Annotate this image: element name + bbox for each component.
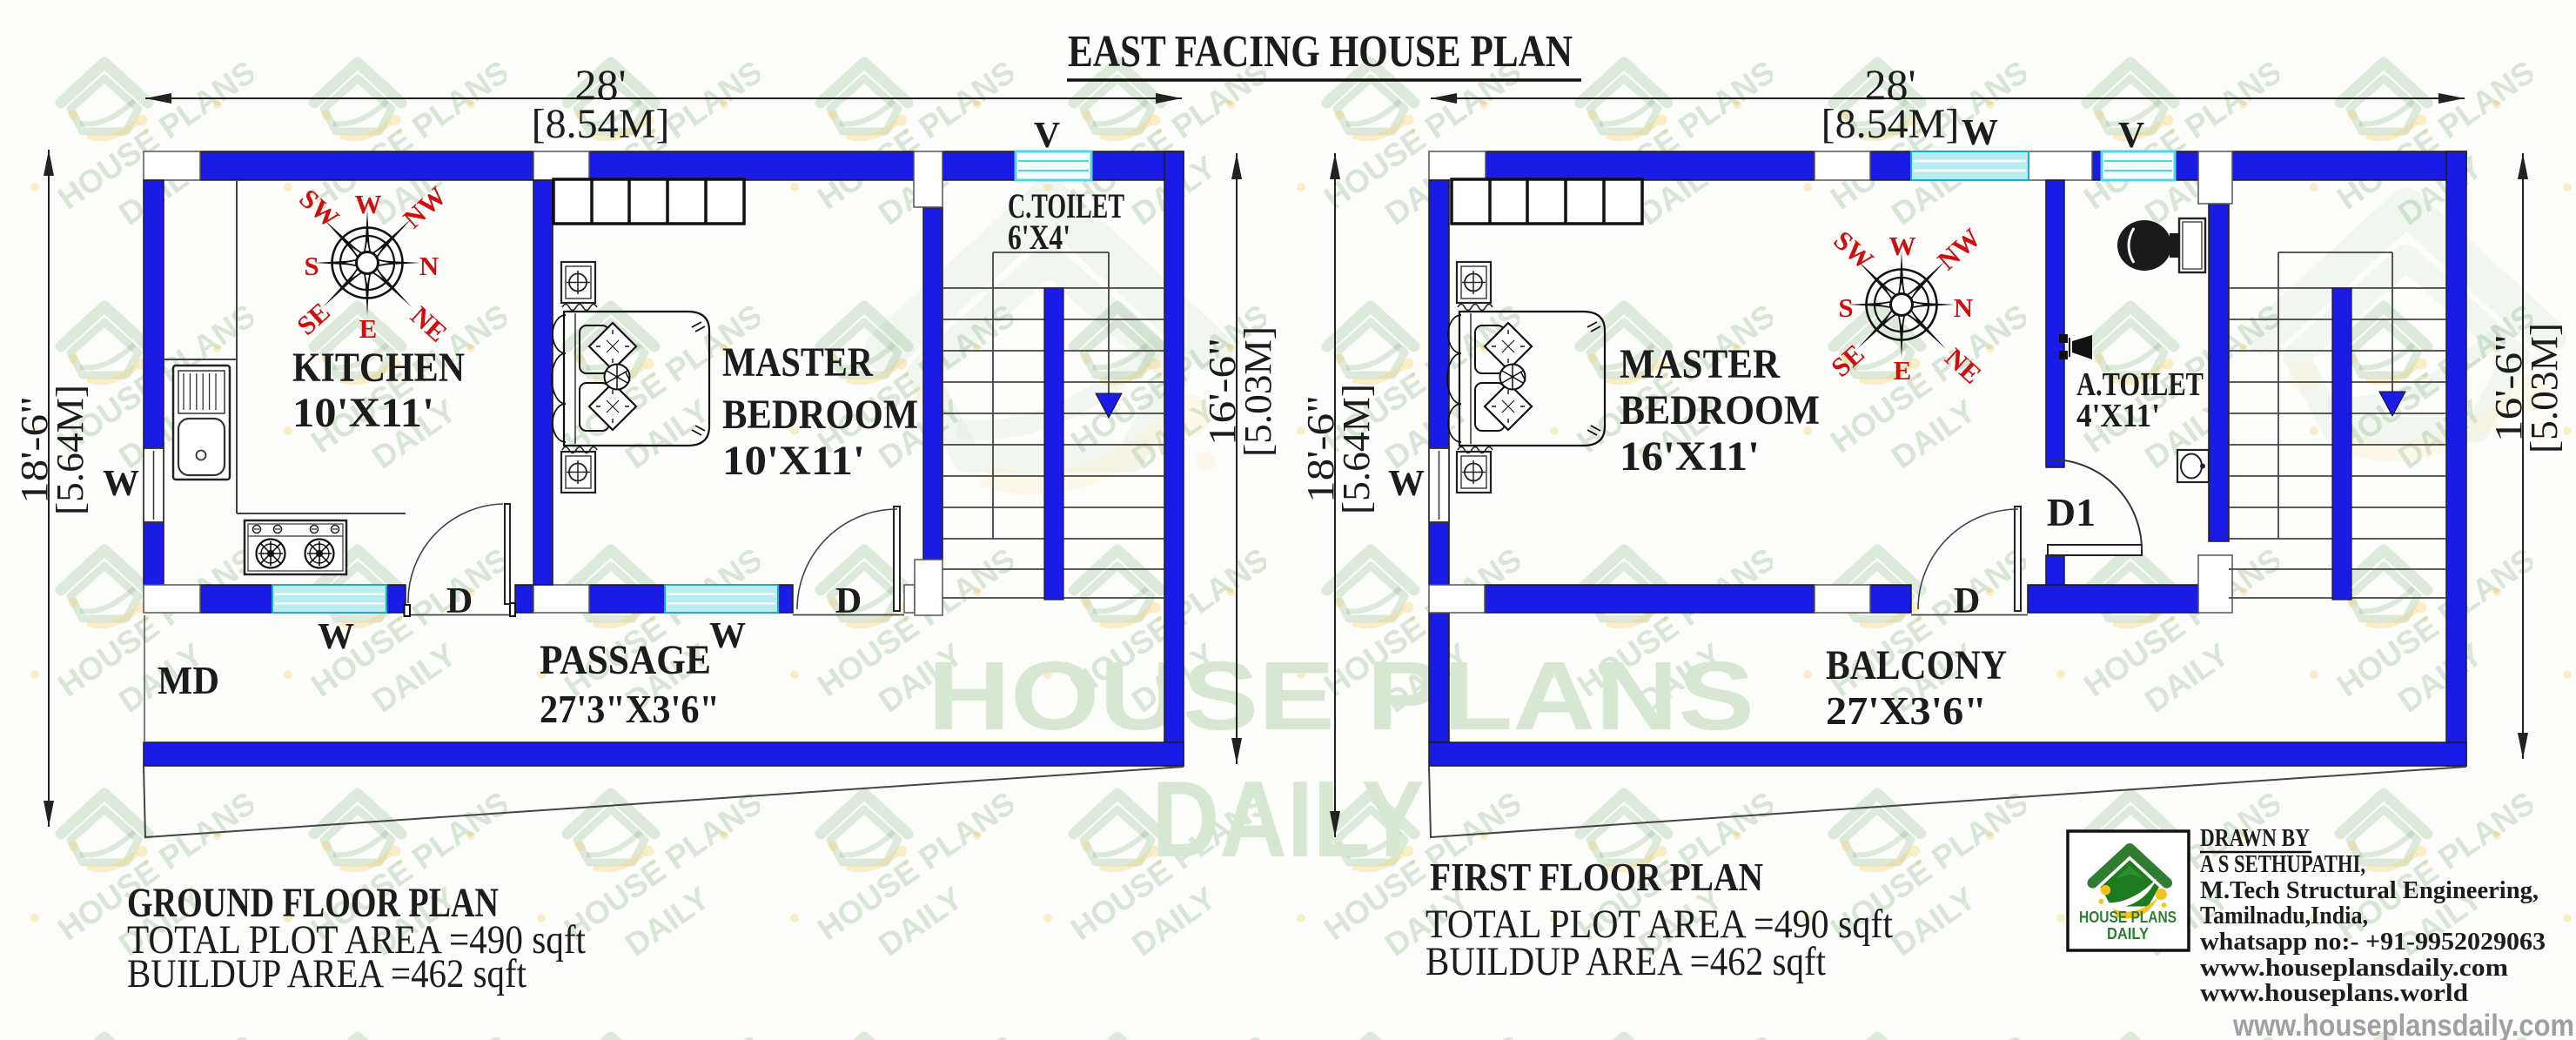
svg-text:E: E	[1894, 355, 1912, 386]
svg-text:BEDROOM: BEDROOM	[1620, 387, 1820, 433]
svg-text:KITCHEN: KITCHEN	[292, 345, 465, 391]
svg-text:DAILY: DAILY	[2107, 925, 2149, 943]
svg-text:BUILDUP AREA =462 sqft: BUILDUP AREA =462 sqft	[127, 951, 527, 996]
svg-text:www.houseplansdaily.com: www.houseplansdaily.com	[2232, 1009, 2574, 1040]
svg-text:MASTER: MASTER	[722, 339, 874, 386]
svg-text:BALCONY: BALCONY	[1826, 642, 2007, 688]
svg-text:W: W	[355, 189, 382, 219]
svg-text:[5.03M]: [5.03M]	[2523, 323, 2566, 453]
svg-text:FIRST FLOOR PLAN: FIRST FLOOR PLAN	[1430, 855, 1763, 899]
svg-text:BEDROOM: BEDROOM	[722, 392, 918, 438]
svg-text:whatsapp no:- +91-9952029063: whatsapp no:- +91-9952029063	[2200, 929, 2546, 956]
svg-text:[5.64M]: [5.64M]	[49, 385, 91, 515]
svg-text:PASSAGE: PASSAGE	[540, 637, 711, 683]
svg-text:10'X11': 10'X11'	[292, 390, 434, 436]
svg-text:V: V	[2118, 116, 2144, 156]
svg-text:[8.54M]: [8.54M]	[1821, 101, 1960, 147]
svg-text:W: W	[709, 616, 746, 656]
svg-text:D: D	[835, 581, 862, 621]
svg-text:Tamilnadu,India,: Tamilnadu,India,	[2200, 902, 2368, 929]
svg-text:www.houseplansdaily.com: www.houseplansdaily.com	[2200, 955, 2508, 982]
svg-text:N: N	[419, 251, 439, 281]
svg-text:27'X3'6": 27'X3'6"	[1826, 688, 1987, 733]
svg-text:S: S	[304, 251, 319, 281]
svg-text:MASTER: MASTER	[1620, 341, 1781, 387]
svg-text:W: W	[318, 617, 354, 657]
svg-text:[8.54M]: [8.54M]	[532, 101, 670, 147]
svg-text:D1: D1	[2047, 490, 2096, 534]
svg-text:S: S	[1838, 292, 1853, 323]
svg-text:W: W	[103, 464, 139, 504]
svg-text:M.Tech Structural Engineering,: M.Tech Structural Engineering,	[2200, 877, 2539, 904]
svg-text:6'X4': 6'X4'	[1008, 218, 1070, 257]
svg-text:HOUSE PLANS: HOUSE PLANS	[928, 641, 1754, 750]
svg-text:DAILY: DAILY	[1152, 760, 1425, 880]
svg-text:www.houseplans.world: www.houseplans.world	[2200, 980, 2468, 1007]
svg-text:MD: MD	[158, 658, 219, 702]
svg-text:N: N	[1954, 292, 1973, 323]
svg-text:BUILDUP AREA =462 sqft: BUILDUP AREA =462 sqft	[1426, 939, 1826, 984]
svg-text:D: D	[446, 581, 473, 621]
svg-text:HOUSE PLANS: HOUSE PLANS	[2079, 909, 2177, 926]
svg-text:A S SETHUPATHI,: A S SETHUPATHI,	[2200, 851, 2365, 878]
svg-text:E: E	[359, 313, 378, 344]
svg-text:16'X11': 16'X11'	[1620, 433, 1760, 480]
svg-text:EAST FACING HOUSE PLAN: EAST FACING HOUSE PLAN	[1068, 27, 1573, 77]
svg-text:10'X11': 10'X11'	[722, 438, 865, 484]
svg-text:DRAWN BY: DRAWN BY	[2200, 825, 2310, 852]
svg-text:[5.03M]: [5.03M]	[1237, 326, 1279, 457]
svg-text:27'3"X3'6": 27'3"X3'6"	[540, 687, 720, 731]
svg-text:D: D	[1954, 581, 1980, 621]
svg-text:V: V	[1034, 116, 1060, 156]
svg-text:W: W	[1889, 231, 1916, 261]
svg-text:4'X11': 4'X11'	[2076, 398, 2160, 434]
svg-text:[5.64M]: [5.64M]	[1335, 384, 1378, 514]
svg-text:W: W	[1388, 464, 1425, 504]
svg-text:W: W	[1962, 113, 1998, 153]
